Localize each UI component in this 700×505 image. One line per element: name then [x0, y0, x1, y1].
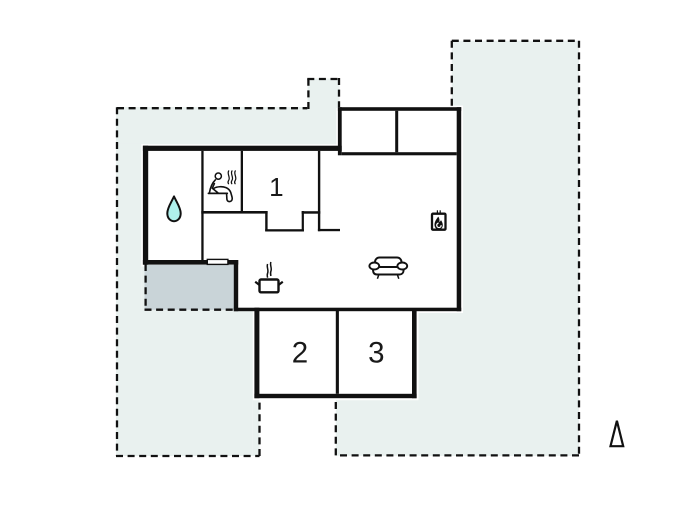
svg-text:1: 1	[269, 172, 283, 202]
svg-text:3: 3	[368, 337, 384, 370]
svg-text:2: 2	[292, 337, 308, 370]
